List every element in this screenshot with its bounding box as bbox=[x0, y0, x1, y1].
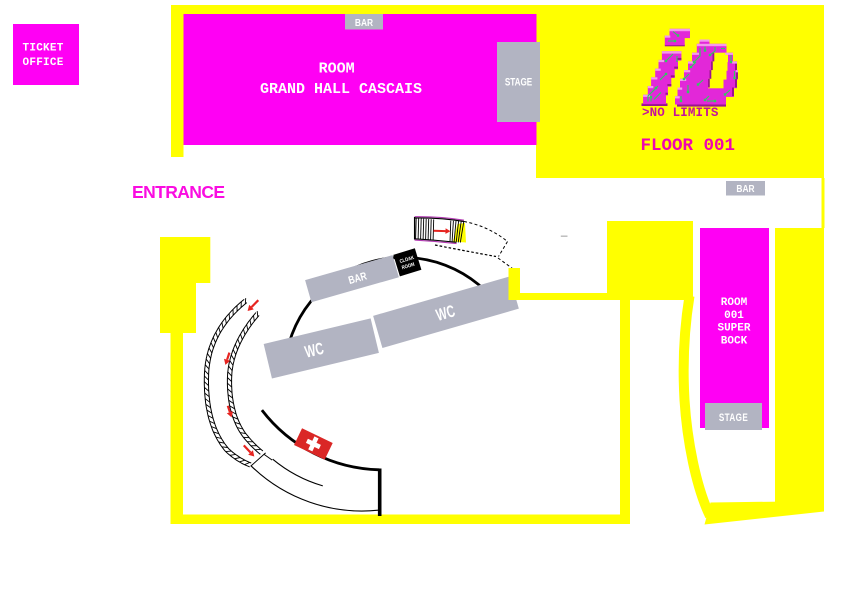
svg-text:SUPER: SUPER bbox=[717, 323, 750, 335]
svg-text:ENTRANCE: ENTRANCE bbox=[132, 182, 224, 202]
svg-text:BOCK: BOCK bbox=[721, 335, 748, 347]
svg-text:>NO LIMITS: >NO LIMITS bbox=[642, 106, 719, 120]
svg-text:ROOM: ROOM bbox=[721, 297, 748, 309]
svg-text:001: 001 bbox=[724, 310, 744, 322]
svg-text:FLOOR 001: FLOOR 001 bbox=[641, 136, 736, 156]
svg-text:TICKET: TICKET bbox=[23, 43, 64, 55]
svg-text:OFFICE: OFFICE bbox=[23, 57, 64, 69]
svg-text:ROOM: ROOM bbox=[319, 61, 355, 78]
svg-text:BAR: BAR bbox=[736, 183, 754, 195]
svg-text:STAGE: STAGE bbox=[719, 412, 748, 425]
svg-text:GRAND HALL CASCAIS: GRAND HALL CASCAIS bbox=[260, 81, 422, 98]
svg-text:STAGE: STAGE bbox=[505, 76, 533, 89]
svg-text:BAR: BAR bbox=[355, 17, 373, 29]
